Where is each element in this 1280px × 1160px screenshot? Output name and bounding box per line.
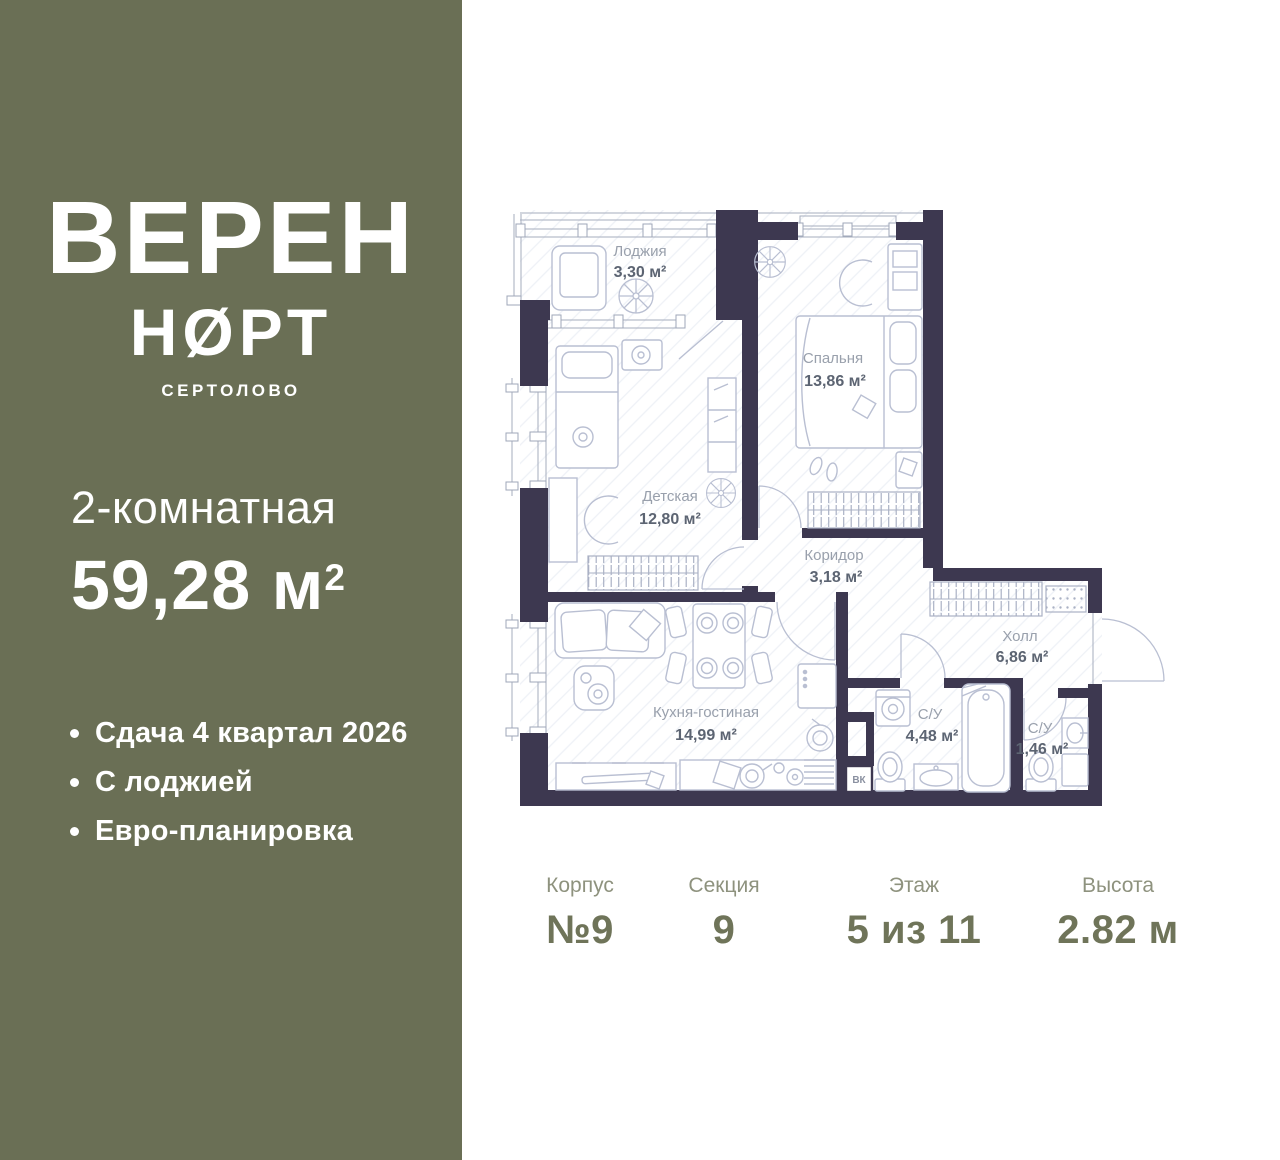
room-area-children: 12,80 м² bbox=[639, 511, 701, 528]
fridge bbox=[798, 664, 836, 708]
area-value: 59,28 м bbox=[71, 546, 324, 624]
apartment-type: 2-комнатная bbox=[71, 482, 336, 534]
spec-section: Секция 9 bbox=[624, 874, 824, 953]
sofa bbox=[555, 603, 665, 658]
kitchen-counter bbox=[680, 760, 836, 790]
feature-label: Сдача 4 квартал 2026 bbox=[95, 717, 408, 750]
room-area-small-bathroom: 1,46 м² bbox=[1016, 741, 1069, 758]
bedside-table bbox=[896, 452, 922, 488]
feature-list: Сдача 4 квартал 2026 С лоджией Евро-план… bbox=[70, 717, 408, 864]
children-dresser bbox=[622, 340, 662, 370]
bedroom-desk bbox=[888, 244, 922, 310]
room-area-kitchen: 14,99 м² bbox=[675, 727, 737, 744]
room-area-hall: 6,86 м² bbox=[996, 649, 1049, 666]
washing-machine bbox=[876, 690, 910, 726]
vent-shaft: ВК bbox=[846, 766, 872, 792]
bath-cabinet bbox=[1062, 754, 1088, 786]
room-label-bedroom: Спальня bbox=[803, 350, 863, 367]
room-label-loggia: Лоджия bbox=[613, 243, 666, 260]
room-label-hall: Холл bbox=[1002, 628, 1037, 645]
bullet-dot-icon bbox=[70, 778, 79, 787]
loggia-armchair bbox=[552, 246, 606, 310]
shaft-label: ВК bbox=[852, 775, 866, 786]
brand-city: СЕРТОЛОВО bbox=[0, 382, 462, 399]
brand-line1: ВЕРЕН bbox=[0, 186, 462, 289]
room-label-small-bathroom: С/У bbox=[1028, 720, 1053, 737]
brand-line2: НØРТ bbox=[0, 299, 462, 365]
spec-label: Секция bbox=[624, 874, 824, 898]
spec-value: 5 из 11 bbox=[814, 908, 1014, 953]
room-label-corridor: Коридор bbox=[804, 547, 863, 564]
feature-item: Евро-планировка bbox=[70, 815, 408, 848]
spec-value: 9 bbox=[624, 908, 824, 953]
room-area-loggia: 3,30 м² bbox=[614, 264, 667, 281]
ceiling-light-icon bbox=[755, 247, 786, 278]
ceiling-light-icon bbox=[619, 279, 653, 313]
area-superscript: 2 bbox=[324, 557, 346, 598]
apartment-area: 59,28 м2 bbox=[71, 545, 346, 625]
bathroom-sink bbox=[914, 764, 958, 790]
bullet-dot-icon bbox=[70, 729, 79, 738]
high-chair bbox=[574, 666, 614, 710]
bathtub bbox=[962, 684, 1010, 792]
shoe-cabinet bbox=[1046, 586, 1086, 612]
room-area-bathroom: 4,48 м² bbox=[906, 728, 959, 745]
feature-item: Сдача 4 квартал 2026 bbox=[70, 717, 408, 750]
floor-plan: ВК Лоджия 3,30 м² Спальня 13,86 м² Детск… bbox=[505, 195, 1175, 825]
room-area-corridor: 3,18 м² bbox=[810, 569, 863, 586]
spec-height: Высота 2.82 м bbox=[1018, 874, 1218, 953]
feature-item: С лоджией bbox=[70, 766, 408, 799]
feature-label: Евро-планировка bbox=[95, 815, 353, 848]
brand-logo: ВЕРЕН НØРТ СЕРТОЛОВО bbox=[0, 186, 462, 399]
feature-label: С лоджией bbox=[95, 766, 253, 799]
room-label-children: Детская bbox=[642, 488, 698, 505]
room-label-kitchen: Кухня-гостиная bbox=[653, 704, 759, 721]
room-label-bathroom: С/У bbox=[918, 706, 943, 723]
spec-value: 2.82 м bbox=[1018, 908, 1218, 953]
entrance-door bbox=[1102, 619, 1164, 681]
room-area-bedroom: 13,86 м² bbox=[804, 373, 866, 390]
bullet-dot-icon bbox=[70, 827, 79, 836]
spec-label: Этаж bbox=[814, 874, 1014, 898]
spec-floor: Этаж 5 из 11 bbox=[814, 874, 1014, 953]
spec-label: Высота bbox=[1018, 874, 1218, 898]
listing-card: { "sidebar": { "background": "#6a6f55", … bbox=[0, 0, 1280, 1160]
children-bed bbox=[556, 346, 618, 468]
ceiling-light-icon bbox=[707, 479, 736, 508]
bookcase bbox=[708, 378, 736, 472]
tv-console bbox=[556, 763, 676, 790]
sidebar: ВЕРЕН НØРТ СЕРТОЛОВО 2-комнатная 59,28 м… bbox=[0, 0, 462, 1160]
